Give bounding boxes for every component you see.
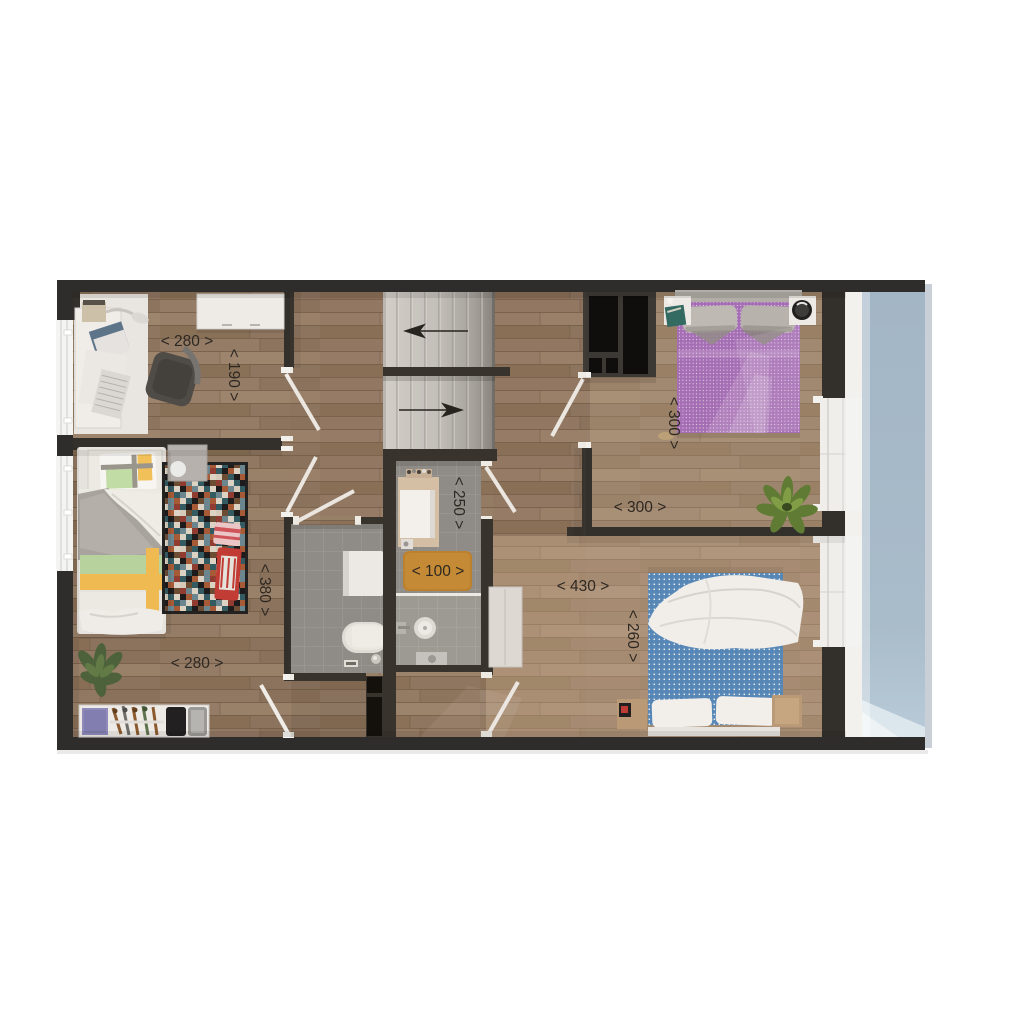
- svg-text:< 380 >: < 380 >: [256, 564, 273, 617]
- svg-text:< 190 >: < 190 >: [225, 349, 242, 402]
- svg-text:< 260 >: < 260 >: [624, 610, 641, 663]
- svg-text:< 280 >: < 280 >: [171, 655, 224, 672]
- svg-text:< 280 >: < 280 >: [161, 333, 214, 350]
- svg-text:< 430 >: < 430 >: [557, 578, 610, 595]
- svg-text:< 100 >: < 100 >: [412, 563, 465, 580]
- svg-text:< 250 >: < 250 >: [450, 477, 467, 530]
- svg-text:< 300 >: < 300 >: [614, 499, 667, 516]
- svg-text:< 300 >: < 300 >: [665, 397, 682, 450]
